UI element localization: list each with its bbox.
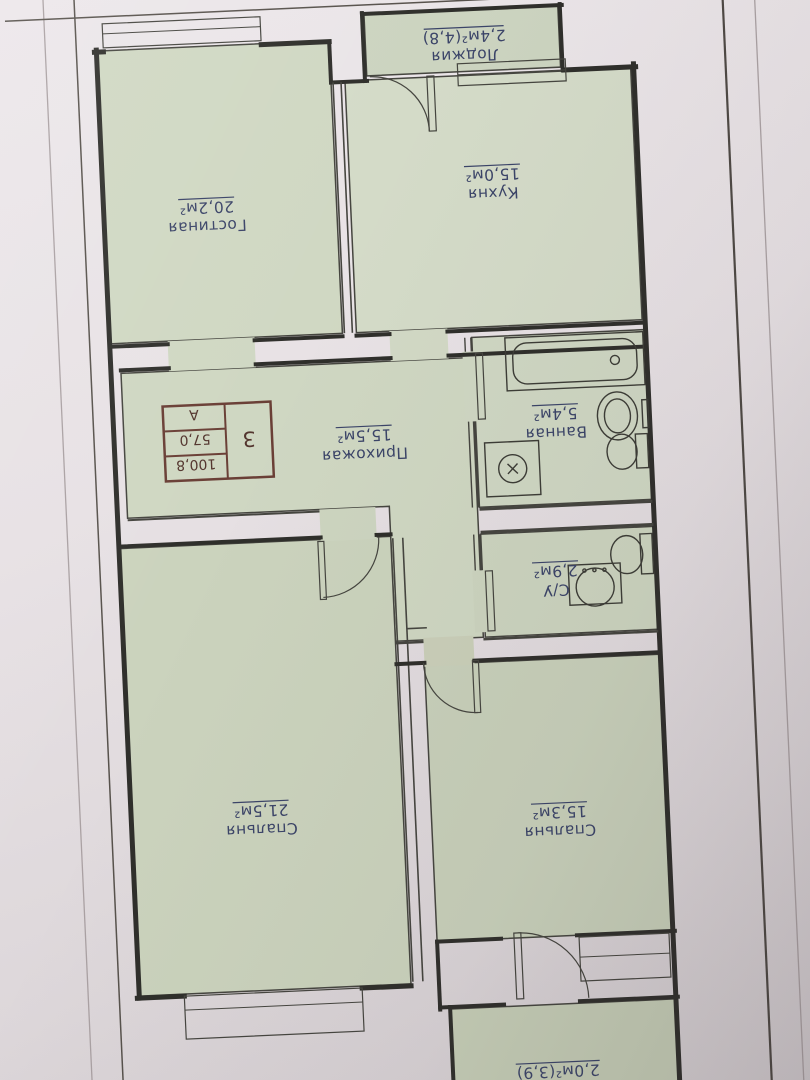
- floorplan-photo: 3 100,8 57,0 А Гостиная 20,2м² Кухня 15,…: [0, 0, 810, 1080]
- floorplan-rotated-sheet: 3 100,8 57,0 А Гостиная 20,2м² Кухня 15,…: [2, 0, 810, 1080]
- floorplan-drawing: 3 100,8 57,0 А Гостиная 20,2м² Кухня 15,…: [2, 0, 810, 1080]
- stamp-total-area: 100,8: [176, 455, 217, 473]
- svg-text:Гостиная: Гостиная: [168, 216, 247, 238]
- svg-text:Ванная: Ванная: [525, 422, 587, 443]
- svg-text:5,4м²: 5,4м²: [533, 404, 578, 424]
- window-living: [102, 17, 261, 48]
- svg-text:15,5м²: 15,5м²: [336, 425, 392, 445]
- svg-text:С/У: С/У: [542, 580, 570, 599]
- label-bathroom: Ванная 5,4м²: [524, 403, 587, 443]
- room-living: [96, 41, 342, 344]
- svg-text:Кухня: Кухня: [467, 183, 519, 203]
- svg-text:Спальня: Спальня: [226, 819, 299, 840]
- door-bedroom-small-loggia: [514, 930, 589, 1001]
- rooms: [95, 2, 679, 1080]
- stamp-living-area: 57,0: [179, 430, 211, 447]
- svg-text:2,9м²: 2,9м²: [533, 561, 578, 581]
- label-loggia-top: Лоджия 2,4м²(4,8): [422, 26, 507, 67]
- svg-text:20,2м²: 20,2м²: [179, 197, 235, 217]
- label-bedroom-large: Спальня 21,5м²: [225, 800, 298, 840]
- stamp-series: А: [188, 406, 199, 422]
- stamp-rooms-count: 3: [242, 426, 256, 451]
- window-bedroom-small: [579, 933, 671, 981]
- svg-text:Лоджия: Лоджия: [431, 45, 499, 66]
- room-bedroom-small: [425, 654, 672, 941]
- svg-text:21,5м²: 21,5м²: [233, 800, 289, 820]
- label-loggia-bottom: 2,0м²(3,9): [516, 1060, 601, 1080]
- svg-text:Спальня: Спальня: [524, 820, 597, 841]
- label-kitchen: Кухня 15,0м²: [464, 164, 522, 204]
- svg-text:15,3м²: 15,3м²: [532, 802, 588, 822]
- window-bedroom-large: [184, 988, 364, 1039]
- label-bedroom-small: Спальня 15,3м²: [523, 801, 596, 841]
- room-bedroom-large: [119, 536, 411, 996]
- svg-text:15,0м²: 15,0м²: [465, 164, 521, 184]
